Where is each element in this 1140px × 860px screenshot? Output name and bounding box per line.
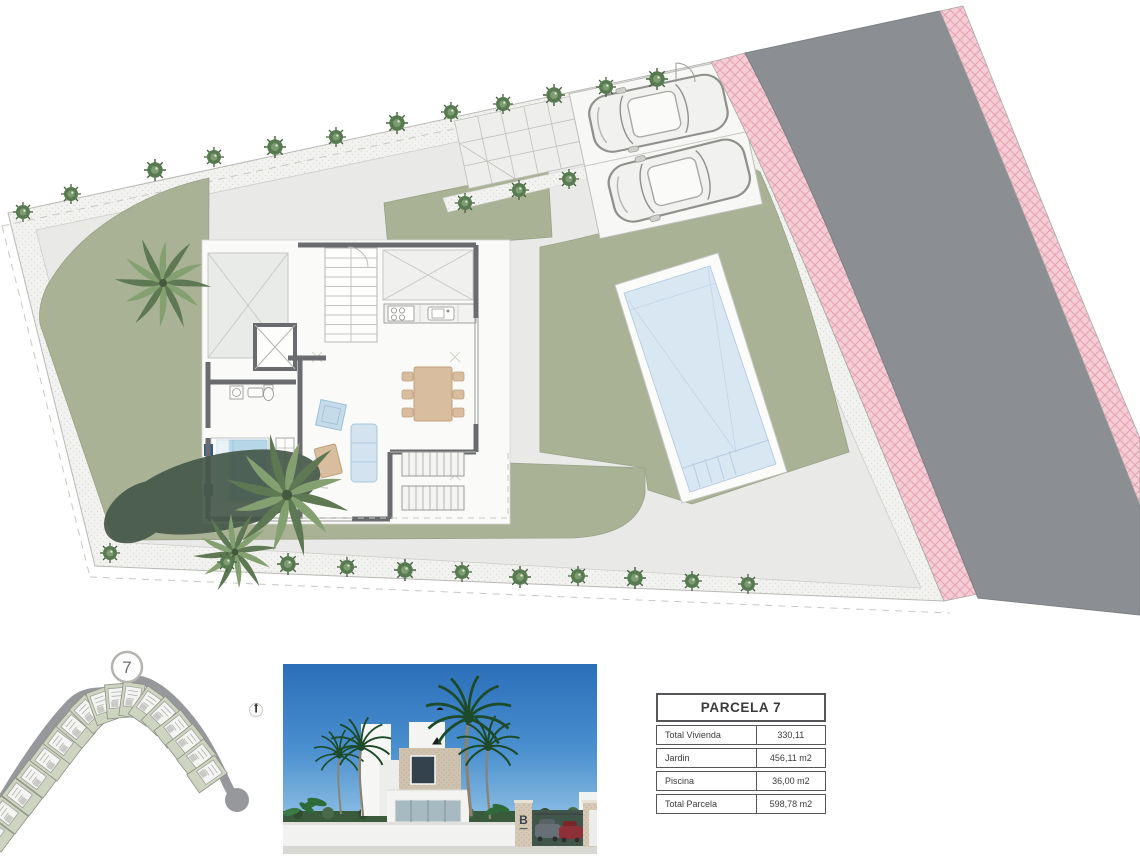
gate-logo: B bbox=[519, 813, 528, 827]
locator-map: 7 bbox=[0, 630, 280, 860]
plan-sheet: 7 bbox=[0, 0, 1140, 860]
north-indicator-icon bbox=[250, 703, 263, 717]
row-value: 330,11 bbox=[757, 726, 825, 744]
row-value: 36,00 m2 bbox=[757, 772, 825, 790]
utility-shaft bbox=[255, 325, 295, 369]
gate-pillar-left: B bbox=[514, 800, 533, 847]
row-value: 598,78 m2 bbox=[757, 795, 825, 813]
row-label: Jardin bbox=[657, 749, 757, 767]
parcel-info-table: PARCELA 7 Total Vivienda 330,11 Jardin 4… bbox=[656, 693, 826, 817]
row-label: Total Vivienda bbox=[657, 726, 757, 744]
villa-render: B bbox=[283, 664, 597, 854]
row-label: Piscina bbox=[657, 772, 757, 790]
skylight bbox=[383, 250, 473, 300]
upper-window bbox=[411, 756, 435, 784]
plot-number-badge: 7 bbox=[112, 652, 142, 682]
locator-plots bbox=[0, 682, 227, 852]
table-row: Piscina 36,00 m2 bbox=[656, 771, 826, 791]
site-plan bbox=[0, 0, 1140, 632]
table-row: Jardin 456,11 m2 bbox=[656, 748, 826, 768]
locator-culdesac bbox=[225, 788, 249, 812]
table-row: Total Vivienda 330,11 bbox=[656, 725, 826, 745]
table-title: PARCELA 7 bbox=[656, 693, 826, 722]
dining-table bbox=[402, 367, 464, 421]
staircase bbox=[325, 248, 377, 342]
sofa bbox=[351, 424, 377, 482]
table-row: Total Parcela 598,78 m2 bbox=[656, 794, 826, 814]
plot-number-label: 7 bbox=[122, 658, 131, 677]
kitchen-counter bbox=[384, 304, 476, 323]
row-label: Total Parcela bbox=[657, 795, 757, 813]
row-value: 456,11 m2 bbox=[757, 749, 825, 767]
